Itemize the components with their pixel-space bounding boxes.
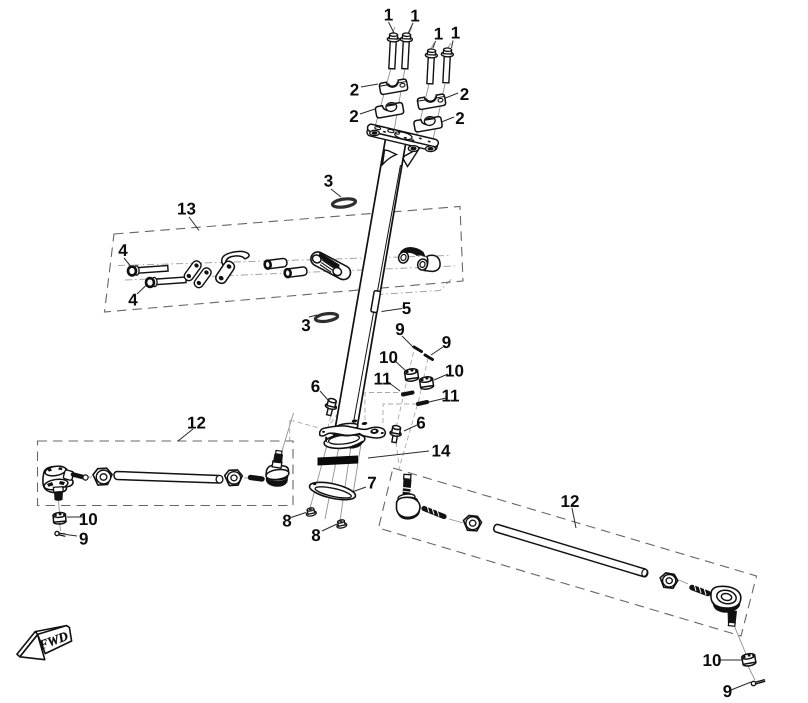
svg-text:9: 9 xyxy=(395,320,404,339)
svg-text:3: 3 xyxy=(301,316,310,335)
svg-text:10: 10 xyxy=(79,510,98,529)
svg-text:11: 11 xyxy=(374,370,392,389)
svg-text:1: 1 xyxy=(434,25,443,44)
svg-text:9: 9 xyxy=(79,530,88,549)
svg-text:12: 12 xyxy=(561,492,580,511)
svg-text:9: 9 xyxy=(723,682,732,701)
svg-text:13: 13 xyxy=(177,200,196,219)
svg-text:7: 7 xyxy=(367,474,376,493)
svg-text:12: 12 xyxy=(187,414,206,433)
svg-text:4: 4 xyxy=(118,241,128,260)
svg-text:1: 1 xyxy=(384,6,393,25)
svg-text:2: 2 xyxy=(349,107,358,126)
svg-text:10: 10 xyxy=(703,651,722,670)
svg-text:11: 11 xyxy=(442,387,460,406)
svg-text:6: 6 xyxy=(416,414,425,433)
svg-text:2: 2 xyxy=(350,81,359,100)
svg-text:5: 5 xyxy=(402,299,411,318)
svg-text:9: 9 xyxy=(442,333,451,352)
svg-text:6: 6 xyxy=(311,377,320,396)
svg-text:14: 14 xyxy=(432,442,451,461)
svg-text:8: 8 xyxy=(282,512,291,531)
svg-text:3: 3 xyxy=(324,172,333,191)
svg-text:10: 10 xyxy=(445,362,464,381)
svg-text:1: 1 xyxy=(410,7,419,26)
svg-text:2: 2 xyxy=(460,85,469,104)
svg-text:2: 2 xyxy=(455,109,464,128)
svg-text:8: 8 xyxy=(311,526,320,545)
svg-text:4: 4 xyxy=(128,291,138,310)
svg-text:1: 1 xyxy=(451,24,460,43)
svg-text:10: 10 xyxy=(379,348,398,367)
